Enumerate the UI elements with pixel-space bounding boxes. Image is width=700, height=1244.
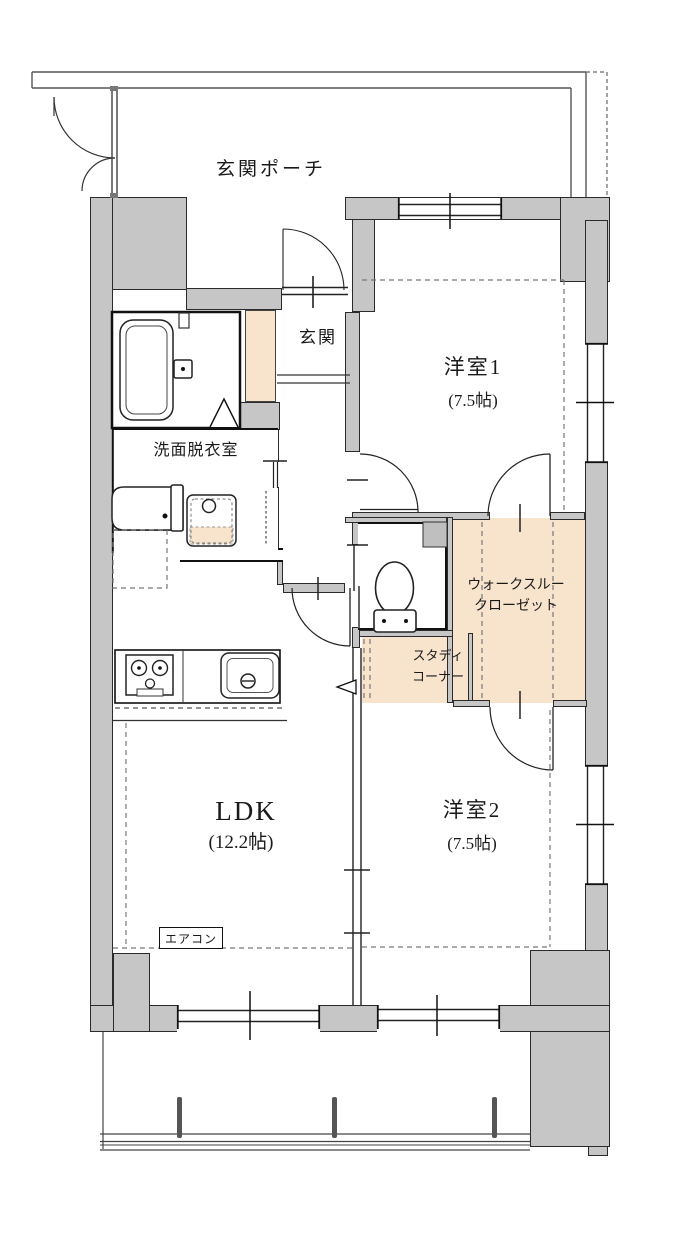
- label-genkan: 玄関: [299, 329, 337, 346]
- label-aircon: エアコン: [165, 930, 217, 947]
- label-room2-size: (7.5帖): [447, 835, 497, 852]
- label-ldk-name: LDK: [215, 798, 277, 825]
- label-room2-name: 洋室2: [443, 800, 502, 821]
- label-study-line1: スタディ: [412, 649, 463, 662]
- label-ldk-size: (12.2帖): [209, 833, 274, 852]
- aircon-label-box: エアコン: [159, 927, 223, 949]
- labels-layer: 玄関ポーチ 玄関 洋室1 (7.5帖) 洗面脱衣室 ウォークスルー クローゼット…: [0, 0, 700, 1244]
- label-study-line2: コーナー: [412, 670, 464, 683]
- label-room1-name: 洋室1: [444, 357, 503, 378]
- label-porch: 玄関ポーチ: [216, 160, 326, 179]
- label-room1-size: (7.5帖): [448, 392, 498, 409]
- floor-plan: 玄関ポーチ 玄関 洋室1 (7.5帖) 洗面脱衣室 ウォークスルー クローゼット…: [0, 0, 700, 1244]
- label-washroom: 洗面脱衣室: [153, 443, 238, 459]
- label-wtc-line2: クローゼット: [474, 600, 558, 614]
- label-wtc-line1: ウォークスルー: [467, 579, 565, 593]
